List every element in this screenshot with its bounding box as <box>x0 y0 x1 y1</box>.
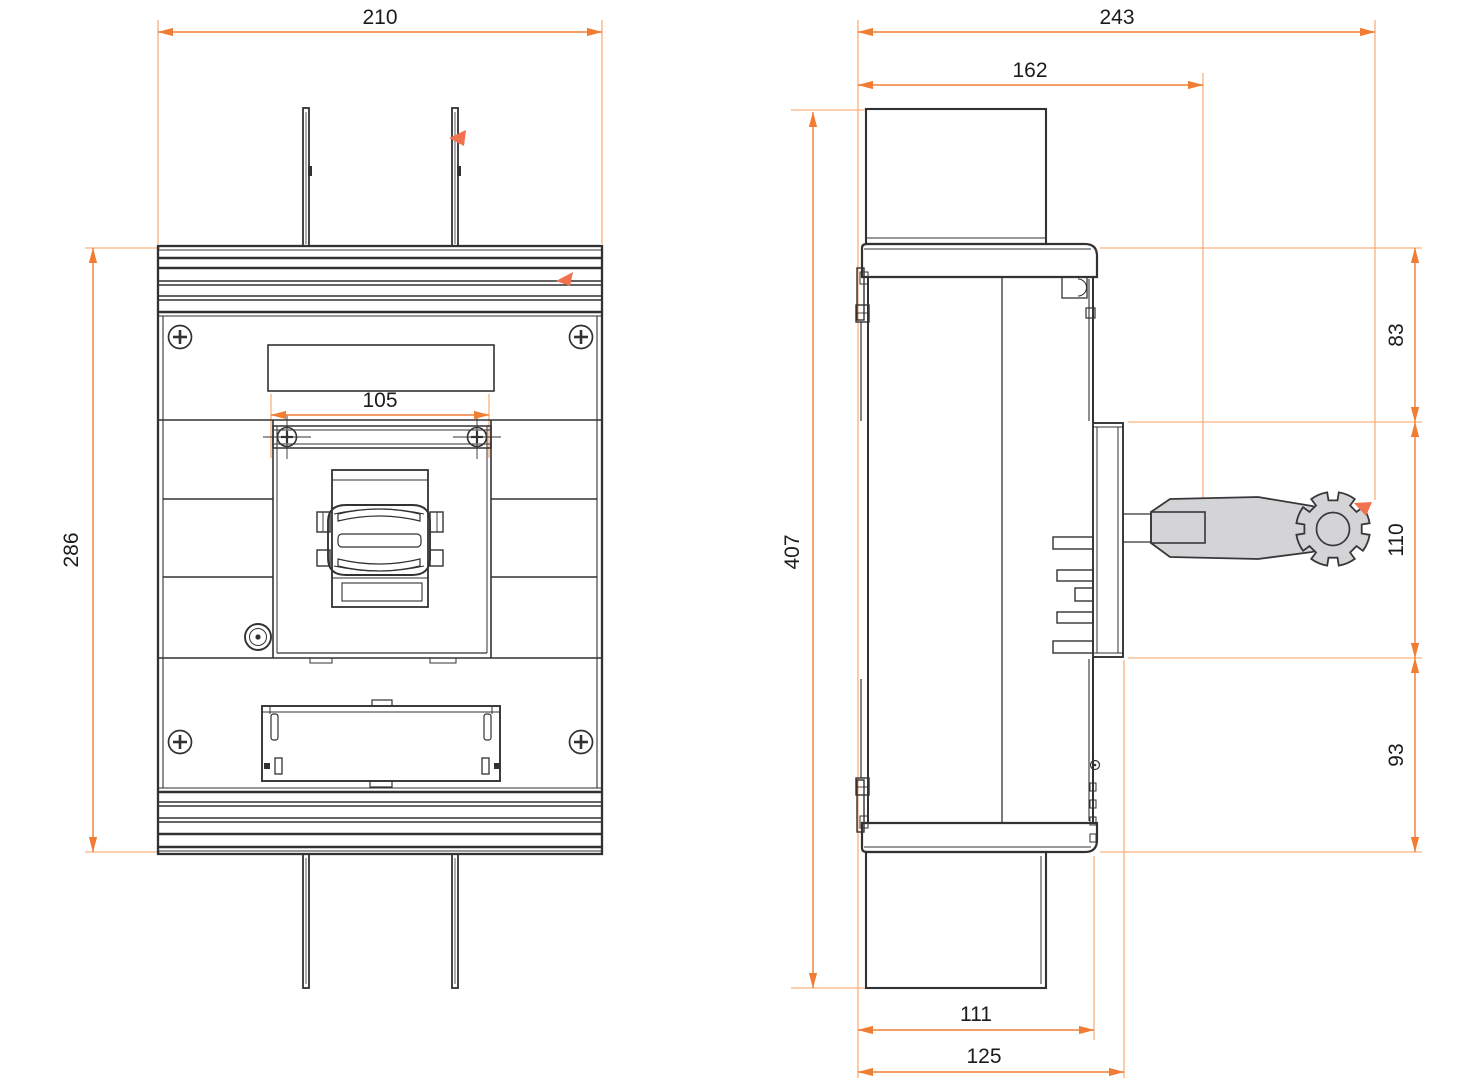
terminal-tab <box>303 108 312 246</box>
top-terminal-cover-ridges <box>158 250 602 316</box>
technical-drawing-canvas: 210 286 105 243 162 407 83 110 <box>0 0 1483 1083</box>
dim-overall-height: 286 <box>60 248 93 852</box>
bottom-cover-cap <box>862 823 1097 852</box>
dimension-label: 407 <box>781 534 804 569</box>
top-cover-cap <box>862 244 1097 277</box>
pole-separator-lines <box>158 420 602 658</box>
dim-body-depth: 162 <box>858 59 1203 85</box>
dimension-label: 111 <box>960 1003 992 1026</box>
dim-lower-section: 93 <box>1385 658 1415 852</box>
dimension-label: 125 <box>966 1045 1001 1068</box>
dim-overall-width: 210 <box>158 6 602 32</box>
dim-body-front-depth: 111 <box>858 1003 1094 1030</box>
dim-handle-mount-width: 105 <box>271 389 489 415</box>
terminal-tab <box>452 854 458 988</box>
breaker-front-outline <box>158 246 602 854</box>
side-view <box>856 109 1372 988</box>
dimension-label: 105 <box>362 389 397 412</box>
phillips-screw <box>570 731 593 754</box>
technical-drawing-page: 210 286 105 243 162 407 83 110 <box>0 0 1483 1083</box>
dimension-label: 210 <box>362 6 397 29</box>
dim-side-overall-height: 407 <box>781 112 813 988</box>
dimension-label: 162 <box>1012 59 1047 82</box>
dim-upper-section: 83 <box>1385 248 1415 422</box>
toggle-handle <box>317 470 443 607</box>
dimension-label: 83 <box>1385 323 1408 346</box>
dimension-label: 243 <box>1099 6 1134 29</box>
rotary-handle-lever <box>1151 492 1370 565</box>
terminal-box-bottom <box>866 852 1046 988</box>
front-face-boss <box>1062 277 1095 318</box>
terminal-tab <box>452 108 461 246</box>
rating-label-plate <box>268 345 494 391</box>
accessory-terminal-tabs <box>1053 537 1093 653</box>
terminal-tab <box>303 854 309 988</box>
marker-arrow <box>556 272 573 286</box>
dim-overall-depth: 243 <box>858 6 1375 32</box>
dim-handle-plate-depth: 125 <box>858 1045 1124 1072</box>
dimension-label: 93 <box>1385 743 1408 766</box>
phillips-screw <box>169 731 192 754</box>
dimension-label: 286 <box>60 532 83 567</box>
accessory-window <box>262 700 500 787</box>
bracket-screw <box>453 415 501 459</box>
bracket-screw <box>263 415 311 459</box>
dimension-label: 110 <box>1385 523 1408 556</box>
front-view <box>158 108 602 988</box>
terminal-box-top <box>866 109 1046 244</box>
breaker-side-body <box>868 277 1093 823</box>
phillips-screw <box>570 326 593 349</box>
dim-handle-section: 110 <box>1385 422 1415 658</box>
trip-test-button <box>245 624 271 650</box>
phillips-screw <box>169 326 192 349</box>
bottom-terminal-cover-ridges <box>158 788 602 851</box>
handle-escutcheon-panel <box>273 420 491 663</box>
handle-mount-plate <box>1093 423 1123 657</box>
